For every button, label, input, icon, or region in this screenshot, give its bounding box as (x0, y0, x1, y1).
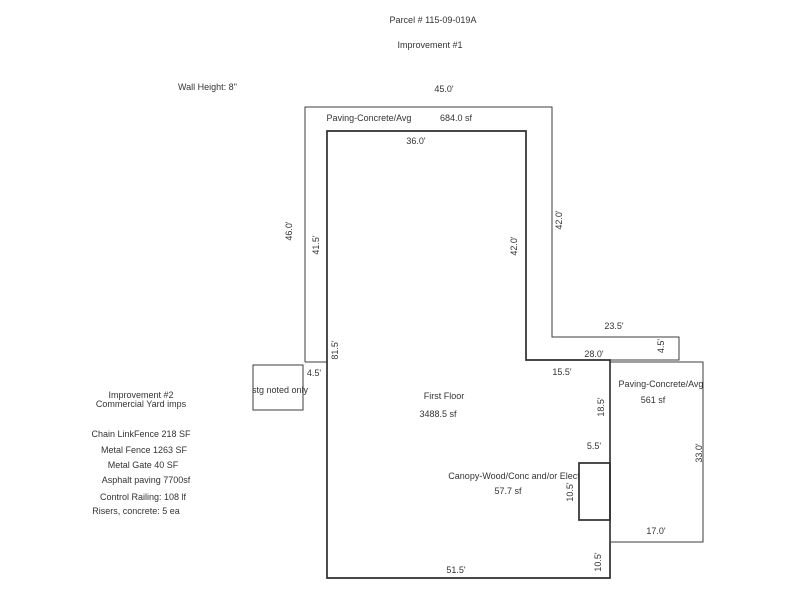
yard-item-metal-fence: Metal Fence 1263 SF (101, 445, 187, 455)
canopy-area: 57.7 sf (494, 486, 521, 496)
outer-paving-area: 684.0 sf (440, 113, 472, 123)
right-paving-outline (610, 362, 703, 542)
improvement-1-title: Improvement #1 (397, 40, 462, 50)
dim-canopy-left: 10.5' (565, 482, 575, 501)
first-floor-name: First Floor (424, 391, 465, 401)
right-paving-name: Paving-Concrete/Avg (619, 379, 704, 389)
parcel-number: Parcel # 115-09-019A (390, 15, 477, 25)
storage-box-label: stg noted only (252, 385, 308, 395)
dim-outer-paving-right: 42.0' (554, 210, 564, 229)
dim-outer-paving-ext-bottom: 28.0' (584, 349, 603, 359)
dim-outer-paving-inner-right: 42.0' (509, 236, 519, 255)
dim-canopy-top: 5.5' (587, 441, 601, 451)
right-paving-area: 561 sf (641, 395, 666, 405)
canopy-name: Canopy-Wood/Conc and/or Elect (448, 471, 579, 481)
improvement-2-subtitle: Commercial Yard imps (96, 399, 186, 409)
dim-outer-paving-top: 45.0' (434, 84, 453, 94)
canopy-outline (579, 463, 610, 520)
dim-first-floor-right-lower: 10.5' (593, 552, 603, 571)
dim-first-floor-top: 36.0' (406, 136, 425, 146)
dim-right-paving-right: 33.0' (694, 443, 704, 462)
outer-paving-name: Paving-Concrete/Avg (327, 113, 412, 123)
dim-outer-paving-ext-top: 23.5' (604, 321, 623, 331)
first-floor-outline (327, 131, 610, 578)
dim-first-floor-step: 15.5' (552, 367, 571, 377)
dim-right-paving-bottom: 17.0' (646, 526, 665, 536)
first-floor-area: 3488.5 sf (419, 409, 456, 419)
yard-item-asphalt-paving: Asphalt paving 7700sf (102, 475, 191, 485)
dim-outer-paving-inner-left: 41.5' (311, 235, 321, 254)
dim-outer-paving-ext-right: 4.5' (656, 339, 666, 353)
parcel-sketch-canvas: Parcel # 115-09-019A Improvement #1 Wall… (0, 0, 800, 600)
yard-item-control-railing: Control Railing: 108 lf (100, 492, 186, 502)
dim-first-floor-left: 81.5' (330, 340, 340, 359)
dim-outer-paving-bottom-left: 4.5' (307, 368, 321, 378)
dim-outer-paving-left: 46.0' (284, 221, 294, 240)
dim-first-floor-bottom: 51.5' (446, 565, 465, 575)
yard-item-metal-gate: Metal Gate 40 SF (108, 460, 179, 470)
yard-item-risers-concrete: Risers, concrete: 5 ea (92, 506, 180, 516)
yard-item-chain-link-fence: Chain LinkFence 218 SF (91, 429, 190, 439)
wall-height-note: Wall Height: 8" (178, 82, 237, 92)
dim-first-floor-right-mid: 18.5' (596, 397, 606, 416)
